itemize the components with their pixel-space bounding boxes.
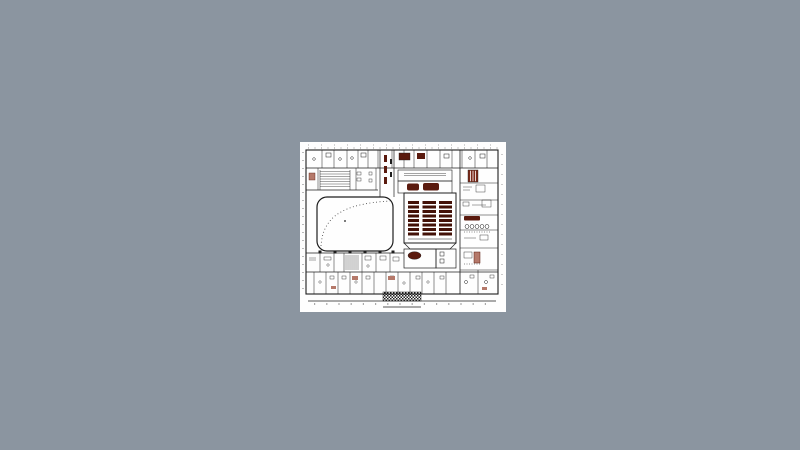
drawing-sheet [300,142,506,312]
floor-plan-svg [300,142,506,312]
floor-plan-geometry [303,145,502,307]
desktop-background [0,0,800,450]
